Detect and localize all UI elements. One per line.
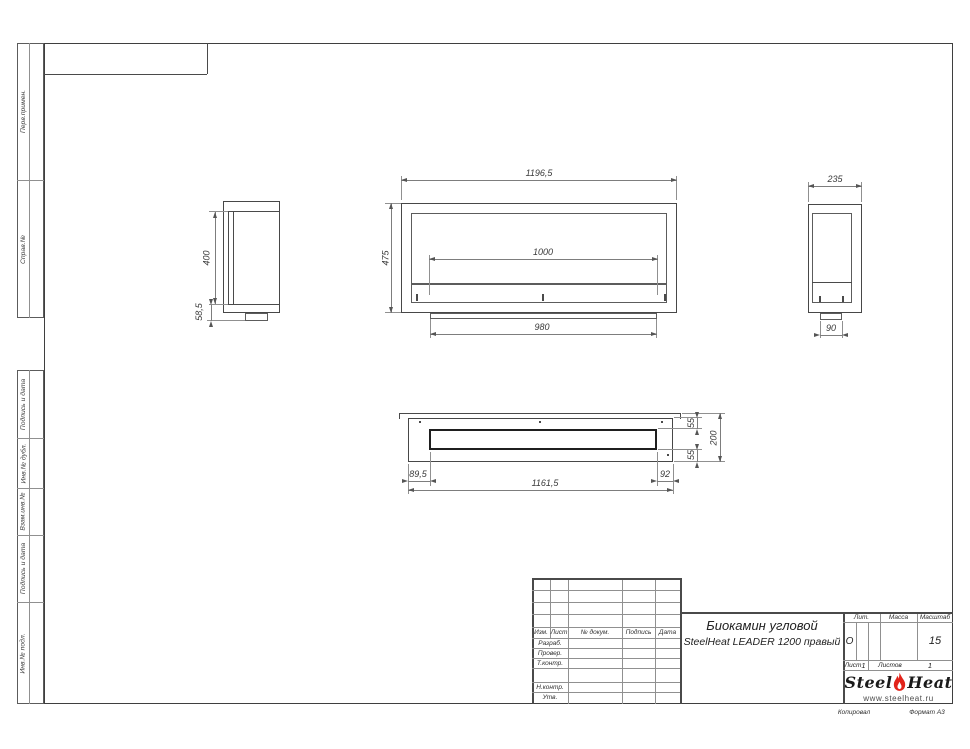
- col-izm: Изм.: [532, 628, 550, 638]
- dim-front-base: 980: [512, 322, 572, 332]
- lit-value: О: [843, 622, 856, 660]
- front-base: [430, 313, 657, 319]
- title-block-line: [532, 602, 680, 603]
- plan-lip: [399, 413, 400, 419]
- dim-line: [211, 305, 212, 321]
- margin-label-inv-podl: Инв.№ подл.: [17, 602, 30, 704]
- sheets-label: Листов: [872, 660, 908, 670]
- sheets-value: 1: [920, 660, 940, 670]
- side-shelf-line: [812, 282, 852, 283]
- dim-line: [720, 413, 721, 462]
- dim-line: [430, 334, 657, 335]
- side-foot: [245, 313, 268, 321]
- dim-line: [401, 180, 677, 181]
- side-inner-wall: [233, 211, 234, 305]
- dim-line: [657, 481, 673, 482]
- ext-line: [657, 255, 658, 295]
- logo-website: www.steelheat.ru: [863, 694, 934, 703]
- dim-plan-front: 55: [686, 415, 697, 431]
- row-razrab: Разраб.: [532, 639, 568, 649]
- row-tkontr: Т.контр.: [532, 659, 568, 669]
- screw-mark: [419, 421, 421, 423]
- screw-mark: [664, 294, 666, 301]
- side-outline: [223, 201, 280, 313]
- dim-front-width: 1196,5: [509, 168, 569, 178]
- screw-mark: [661, 421, 663, 423]
- dim-left-opening: 400: [201, 233, 213, 283]
- scale-value: 15: [917, 622, 953, 660]
- logo-steel-text: Steel: [845, 673, 893, 692]
- dim-right-depth: 235: [815, 174, 855, 184]
- side-foot: [820, 313, 842, 320]
- row-prover: Провер.: [532, 649, 568, 659]
- dim-line: [408, 490, 673, 491]
- plan-burner-slot: [429, 429, 657, 450]
- title-block-line: [532, 614, 680, 615]
- screw-mark: [539, 421, 541, 423]
- col-docnum: № докум.: [568, 628, 622, 638]
- title-block-line: [655, 578, 656, 704]
- dim-line: [808, 186, 862, 187]
- logo-heat-text: Heat: [907, 673, 952, 692]
- margin-label-podpis-data-1: Подпись и дата: [17, 370, 30, 438]
- dim-front-burner: 1000: [513, 247, 573, 257]
- row-nkontr: Н.контр.: [532, 683, 568, 693]
- front-burner-shelf: [411, 284, 667, 303]
- logo-row: Steel Heat: [845, 672, 953, 693]
- margin-label-perv-primen: Перв.примен.: [17, 43, 30, 180]
- screw-mark: [842, 296, 844, 302]
- margin-label-sprav-no: Справ.№: [17, 180, 30, 318]
- logo: Steel Heat www.steelheat.ru: [844, 671, 953, 703]
- flame-icon: [892, 672, 907, 693]
- dim-plan-length: 1161,5: [510, 478, 580, 488]
- plan-lip: [680, 413, 681, 419]
- drawing-frame: [44, 43, 953, 704]
- plan-lip: [399, 413, 681, 414]
- side-opening: [812, 213, 852, 303]
- screw-mark: [416, 294, 418, 301]
- title-block-line: [532, 590, 680, 591]
- ext-line: [429, 255, 430, 295]
- copied-label: Копировал: [824, 708, 884, 718]
- title-block-line: [856, 622, 857, 660]
- doc-title-line2: SteelHeat LEADER 1200 правый: [682, 634, 842, 650]
- dim-left-bottom: 58,5: [193, 299, 205, 325]
- col-list: Лист: [550, 628, 568, 638]
- dim-line: [215, 212, 216, 304]
- top-left-box-line: [44, 74, 207, 75]
- screw-mark: [667, 454, 669, 456]
- drawing-sheet: Перв.примен. Справ.№ Подпись и дата Инв.…: [0, 0, 970, 749]
- mass-label: Масса: [880, 613, 917, 623]
- dim-plan-right: 92: [652, 469, 678, 479]
- margin-label-inv-dubl: Инв.№ дубл.: [17, 438, 30, 488]
- dim-line: [429, 259, 658, 260]
- ext-line: [209, 211, 228, 212]
- top-left-box-line: [207, 43, 208, 74]
- format-label: Формат А3: [901, 708, 953, 718]
- dim-right-foot: 90: [820, 323, 842, 333]
- title-block-line: [568, 578, 569, 704]
- side-inner-wall: [228, 211, 229, 305]
- screw-mark: [542, 294, 544, 301]
- col-podpis: Подпись: [622, 628, 655, 638]
- title-block-line: [622, 578, 623, 704]
- side-top-band: [223, 211, 280, 212]
- dim-line: [820, 335, 842, 336]
- title-block-line: [532, 578, 681, 580]
- dim-line: [408, 481, 430, 482]
- row-utv: Утв.: [532, 693, 568, 703]
- screw-mark: [819, 296, 821, 302]
- col-data: Дата: [655, 628, 680, 638]
- side-shelf-line: [228, 304, 280, 305]
- sheet-value: 1: [859, 660, 868, 670]
- dim-line: [697, 450, 698, 462]
- dim-plan-left: 89,5: [402, 469, 434, 479]
- doc-title-line1: Биокамин угловой: [682, 616, 842, 634]
- margin-label-podpis-data-2: Подпись и дата: [17, 535, 30, 602]
- title-block-line: [868, 622, 869, 670]
- dim-plan-depth: 200: [708, 424, 719, 451]
- margin-label-vzam-inv: Взам.инв.№: [17, 488, 30, 535]
- dim-front-height: 475: [380, 233, 392, 283]
- dim-line: [697, 418, 698, 429]
- dim-plan-back: 55: [686, 447, 697, 463]
- ext-line: [385, 203, 401, 204]
- ext-line: [385, 312, 401, 313]
